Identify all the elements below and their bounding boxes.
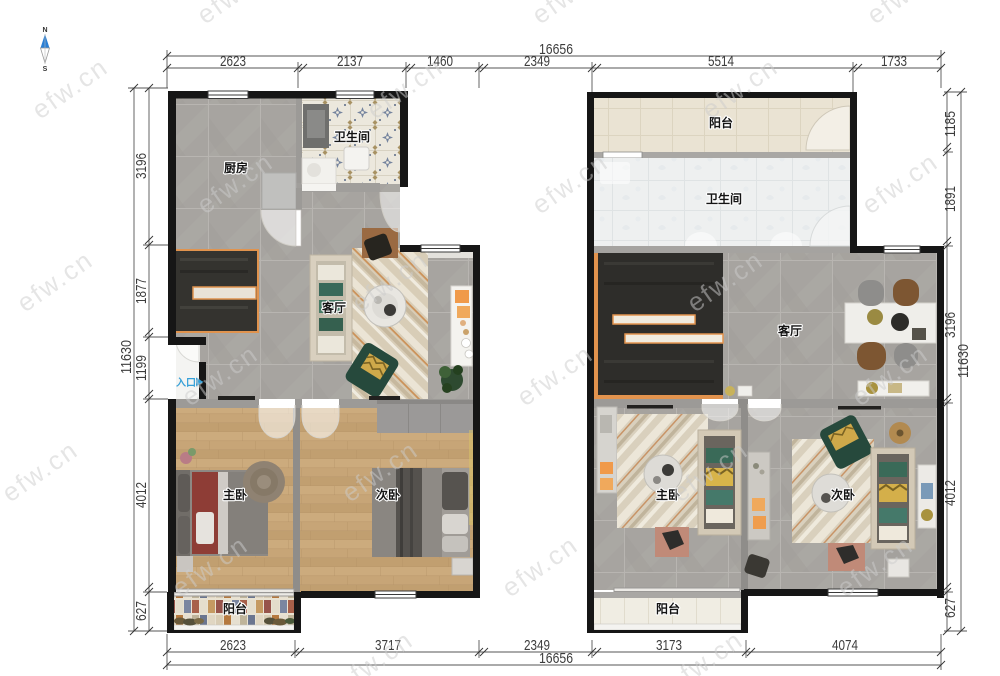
svg-text:1733: 1733 [881,53,907,70]
svg-text:客厅: 客厅 [777,323,802,338]
svg-text:阳台: 阳台 [223,601,247,616]
svg-text:2623: 2623 [220,53,246,70]
svg-text:卫生间: 卫生间 [706,191,742,206]
svg-text:2137: 2137 [337,53,363,70]
svg-text:627: 627 [942,598,959,618]
svg-text:主卧: 主卧 [223,487,247,502]
svg-text:16656: 16656 [539,41,573,58]
svg-text:N: N [42,27,47,34]
svg-text:2623: 2623 [220,637,246,654]
svg-text:1185: 1185 [942,111,959,137]
svg-text:S: S [43,66,48,73]
svg-text:1199: 1199 [133,355,150,381]
svg-text:客厅: 客厅 [321,300,346,315]
svg-text:4012: 4012 [942,480,959,506]
svg-text:3196: 3196 [942,312,959,338]
svg-text:16656: 16656 [539,650,573,667]
svg-text:阳台: 阳台 [656,601,680,616]
svg-text:11630: 11630 [955,344,972,378]
svg-text:4012: 4012 [133,482,150,508]
svg-text:卫生间: 卫生间 [334,129,370,144]
svg-text:1877: 1877 [133,278,150,304]
svg-text:3196: 3196 [133,153,150,179]
svg-text:次卧: 次卧 [831,487,855,502]
svg-text:627: 627 [133,601,150,621]
svg-text:11630: 11630 [118,340,135,374]
svg-text:1891: 1891 [942,186,959,212]
svg-text:3173: 3173 [656,637,682,654]
svg-text:5514: 5514 [708,53,734,70]
svg-text:4074: 4074 [832,637,858,654]
